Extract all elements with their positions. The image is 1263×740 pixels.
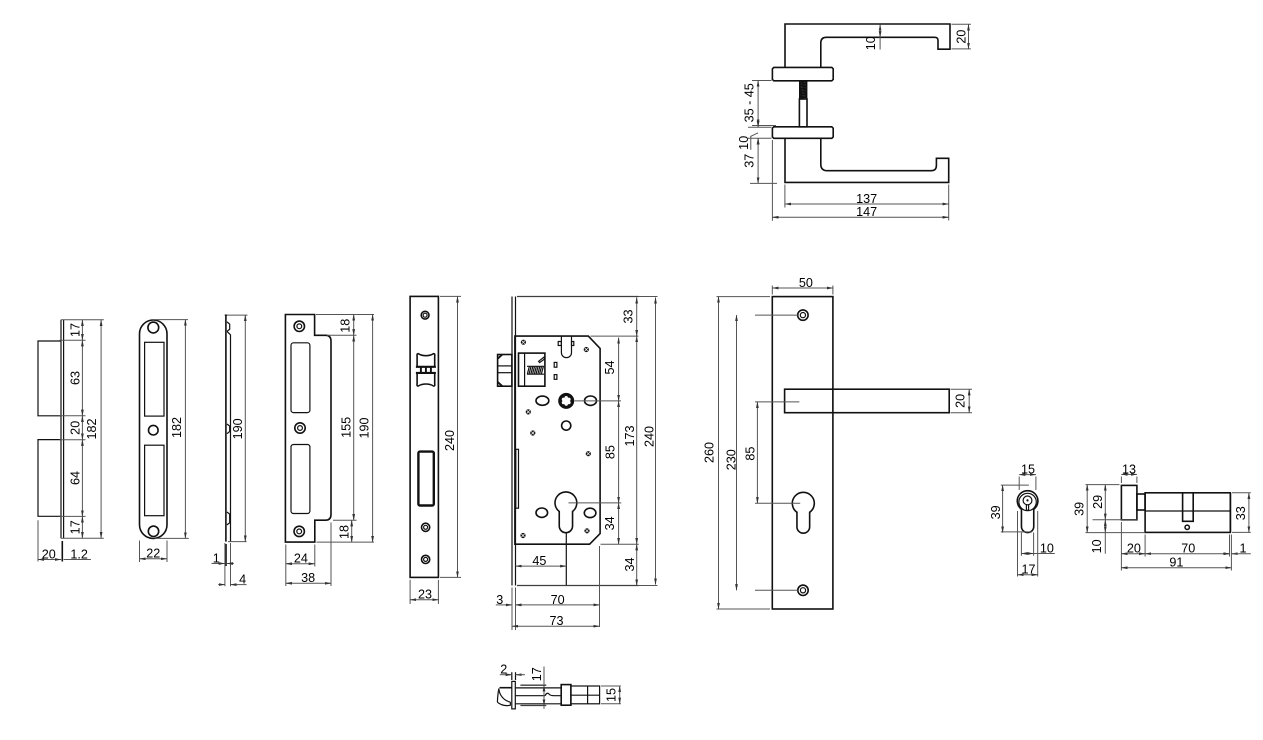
svg-text:34: 34 xyxy=(623,557,637,571)
svg-text:34: 34 xyxy=(603,516,617,530)
svg-text:182: 182 xyxy=(85,418,99,439)
svg-text:2: 2 xyxy=(500,663,507,677)
svg-text:3: 3 xyxy=(496,593,503,607)
svg-text:155: 155 xyxy=(340,417,354,438)
svg-text:64: 64 xyxy=(69,471,83,485)
svg-text:20: 20 xyxy=(954,394,968,408)
svg-text:173: 173 xyxy=(623,425,637,446)
svg-text:39: 39 xyxy=(989,505,1003,519)
svg-text:10: 10 xyxy=(737,136,751,150)
svg-text:190: 190 xyxy=(357,417,371,438)
svg-text:24: 24 xyxy=(294,552,308,566)
svg-text:63: 63 xyxy=(69,371,83,385)
svg-text:85: 85 xyxy=(744,447,758,461)
svg-text:20: 20 xyxy=(955,30,969,44)
svg-text:190: 190 xyxy=(231,418,245,439)
svg-text:10: 10 xyxy=(1090,539,1104,553)
svg-text:10: 10 xyxy=(1040,541,1054,555)
svg-text:147: 147 xyxy=(856,205,877,219)
svg-text:240: 240 xyxy=(443,430,457,451)
svg-text:15: 15 xyxy=(1021,463,1035,477)
svg-text:17: 17 xyxy=(69,323,83,337)
svg-text:70: 70 xyxy=(1181,542,1195,556)
svg-text:17: 17 xyxy=(530,667,544,681)
svg-text:15: 15 xyxy=(605,688,619,702)
svg-text:23: 23 xyxy=(418,588,432,602)
svg-text:73: 73 xyxy=(549,614,563,628)
svg-text:13: 13 xyxy=(1122,462,1136,476)
svg-text:20: 20 xyxy=(1127,542,1141,556)
svg-text:38: 38 xyxy=(301,571,315,585)
svg-text:1: 1 xyxy=(1239,542,1246,556)
svg-text:17: 17 xyxy=(69,520,83,534)
svg-text:230: 230 xyxy=(725,449,739,470)
svg-text:91: 91 xyxy=(1169,556,1183,570)
svg-text:4: 4 xyxy=(239,573,246,587)
svg-text:240: 240 xyxy=(642,426,656,447)
svg-text:182: 182 xyxy=(170,417,184,438)
svg-text:20: 20 xyxy=(42,547,56,561)
svg-text:85: 85 xyxy=(604,445,618,459)
svg-text:1.2: 1.2 xyxy=(70,547,88,561)
svg-text:37: 37 xyxy=(743,154,757,168)
svg-text:18: 18 xyxy=(338,319,352,333)
svg-text:137: 137 xyxy=(856,192,877,206)
svg-text:33: 33 xyxy=(1234,506,1248,520)
svg-text:35 - 45: 35 - 45 xyxy=(743,83,757,122)
svg-text:22: 22 xyxy=(146,547,160,561)
svg-text:54: 54 xyxy=(603,360,617,374)
svg-text:10: 10 xyxy=(864,36,878,50)
svg-text:33: 33 xyxy=(622,309,636,323)
svg-text:29: 29 xyxy=(1091,495,1105,509)
svg-text:18: 18 xyxy=(338,525,352,539)
svg-text:260: 260 xyxy=(703,442,717,463)
svg-text:39: 39 xyxy=(1073,502,1087,516)
svg-text:20: 20 xyxy=(69,421,83,435)
svg-text:70: 70 xyxy=(551,593,565,607)
svg-text:45: 45 xyxy=(532,554,546,568)
svg-text:50: 50 xyxy=(799,276,813,290)
svg-text:17: 17 xyxy=(1021,563,1035,577)
svg-text:1: 1 xyxy=(213,551,220,565)
